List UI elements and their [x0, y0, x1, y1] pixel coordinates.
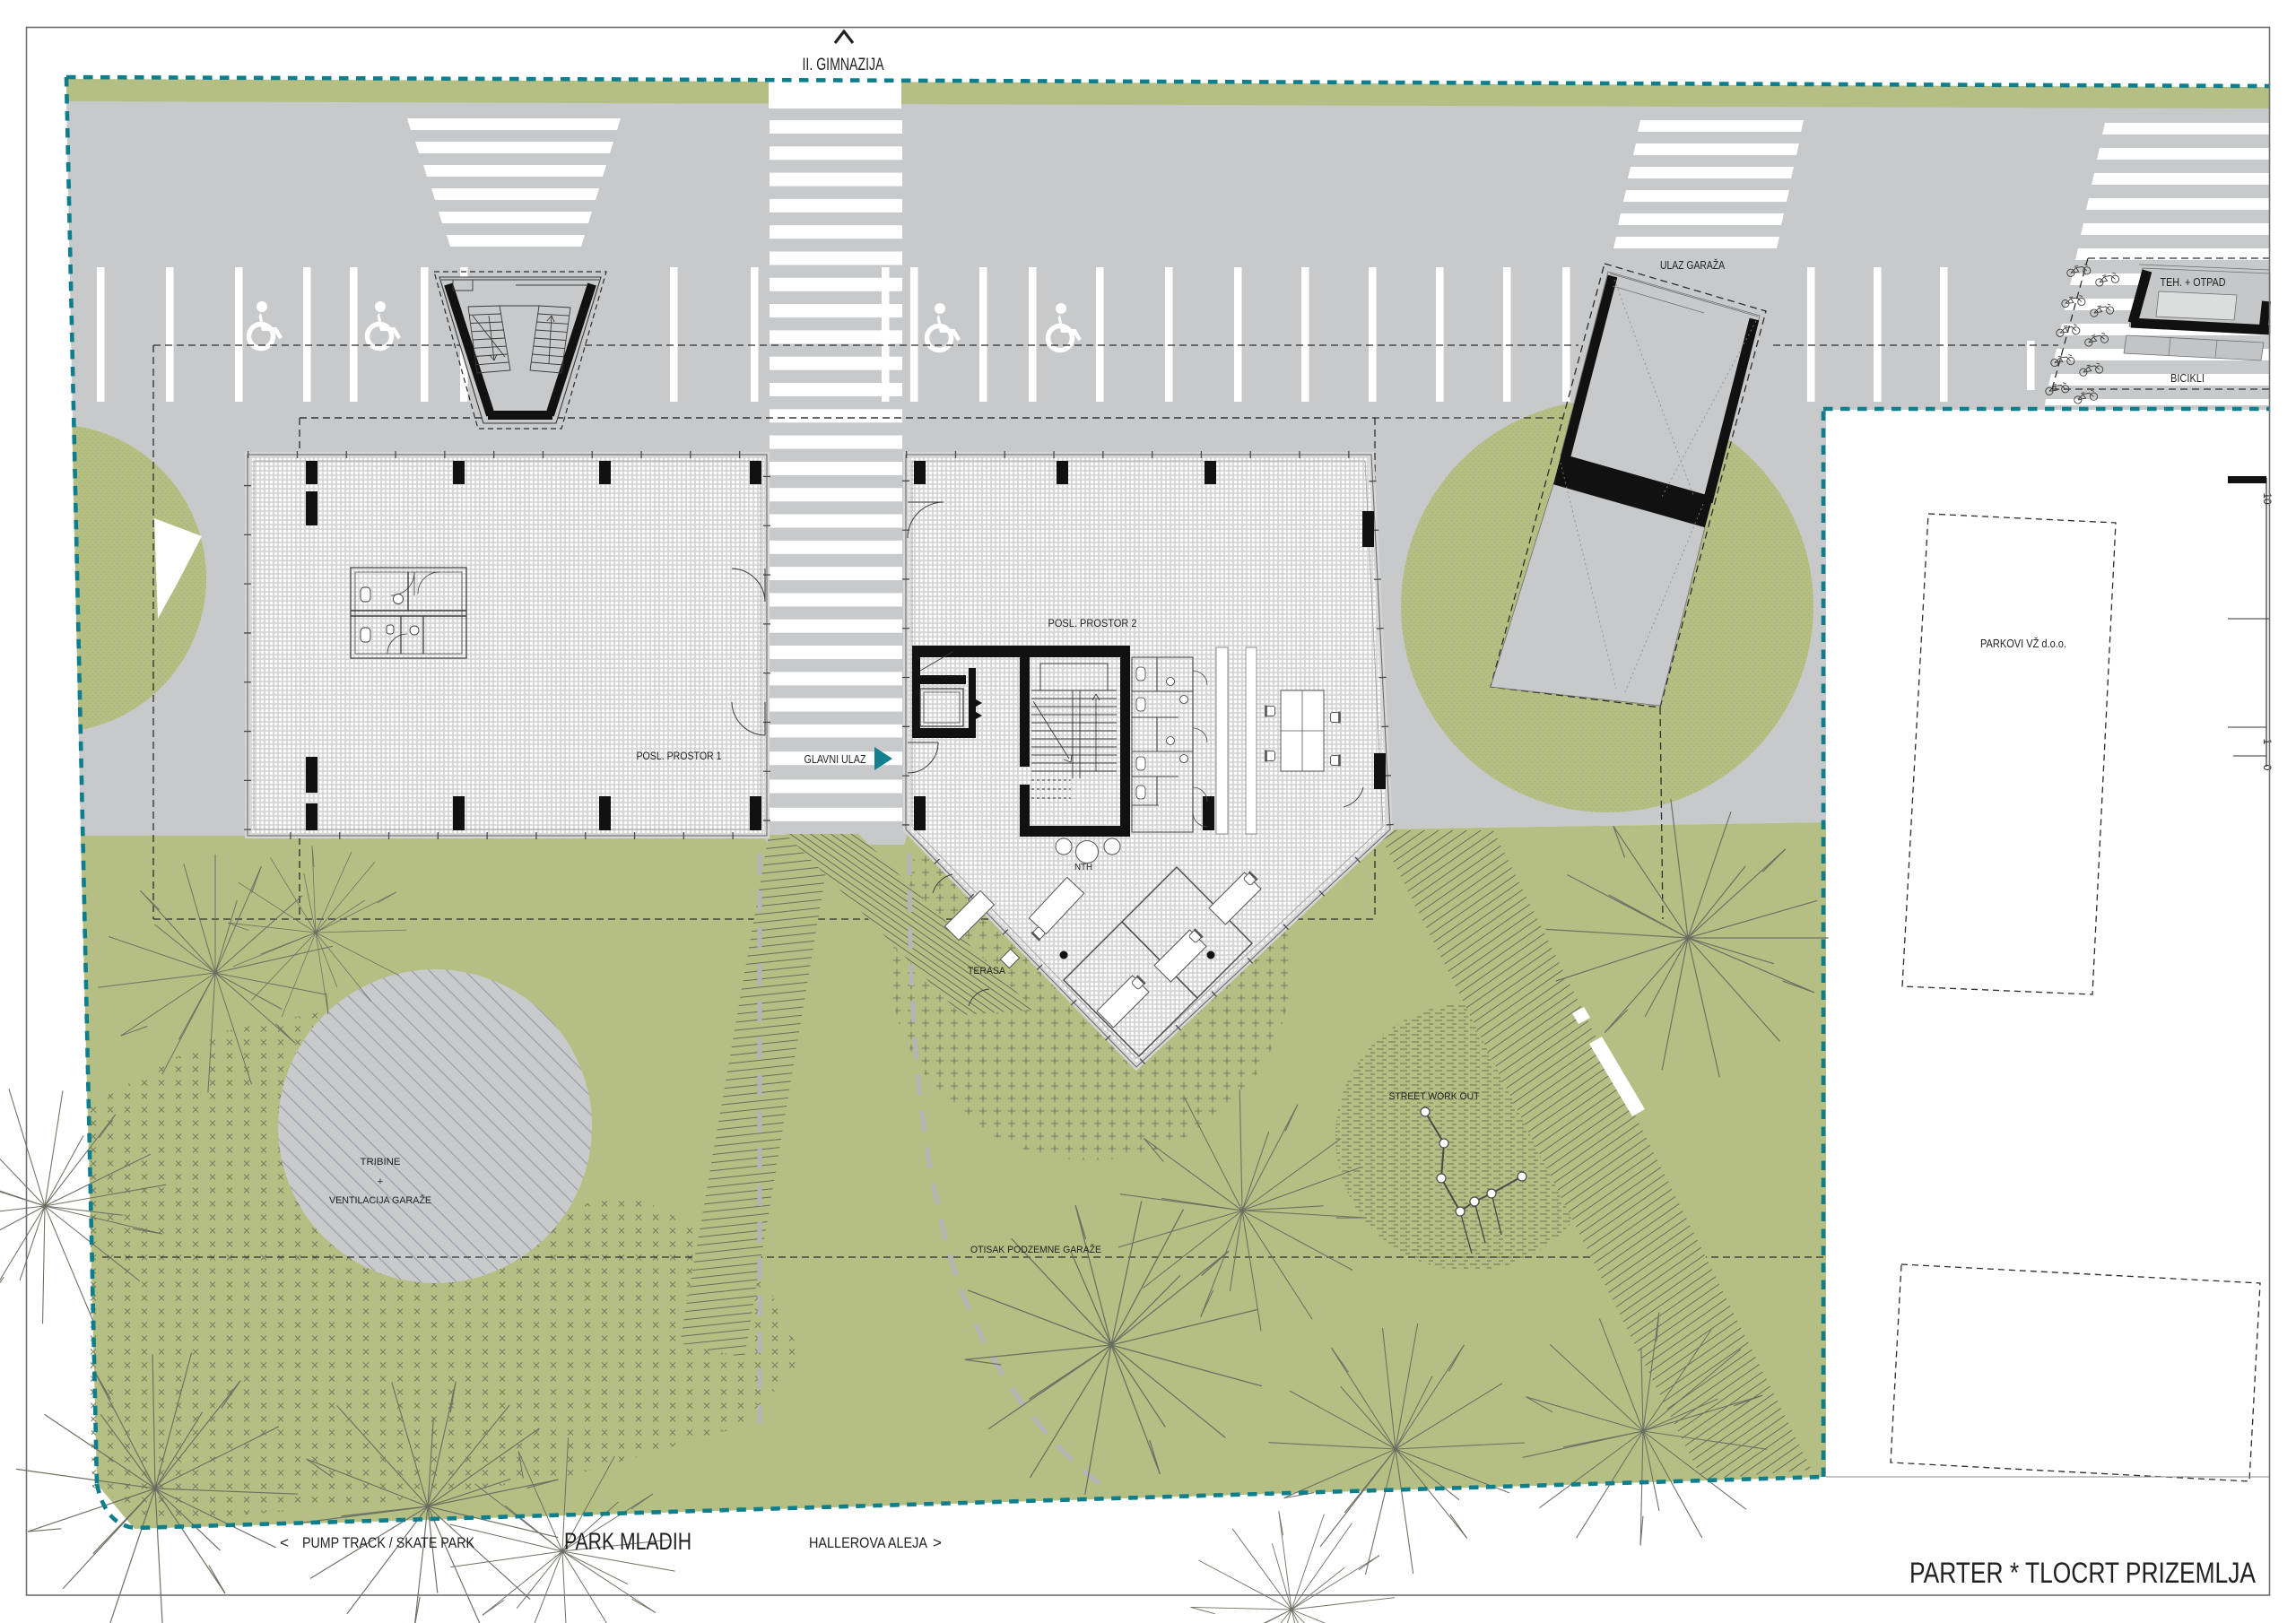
svg-text:POSL. PROSTOR 2: POSL. PROSTOR 2	[1048, 617, 1137, 629]
svg-text:PARKOVI VŽ d.o.o.: PARKOVI VŽ d.o.o.	[1980, 637, 2066, 650]
svg-text:<: <	[280, 1534, 289, 1551]
svg-text:PARTER * TLOCRT PRIZEMLJA: PARTER * TLOCRT PRIZEMLJA	[1909, 1557, 2257, 1589]
svg-text:NTH: NTH	[1074, 862, 1092, 872]
svg-text:TEH. + OTPAD: TEH. + OTPAD	[2161, 276, 2226, 289]
svg-text:TERASA: TERASA	[968, 966, 1006, 976]
svg-text:PUMP TRACK / SKATE PARK: PUMP TRACK / SKATE PARK	[302, 1534, 475, 1551]
svg-text:II. GIMNAZIJA: II. GIMNAZIJA	[803, 55, 884, 74]
svg-text:OTISAK PODZEMNE GARAŽE: OTISAK PODZEMNE GARAŽE	[970, 1244, 1101, 1255]
svg-text:POSL. PROSTOR 1: POSL. PROSTOR 1	[637, 750, 722, 762]
svg-text:PARK MLADIH: PARK MLADIH	[564, 1528, 691, 1555]
svg-text:1: 1	[2261, 739, 2274, 745]
svg-text:+: +	[378, 1176, 383, 1187]
svg-text:0: 0	[2261, 765, 2274, 771]
svg-text:HALLEROVA ALEJA: HALLEROVA ALEJA	[809, 1534, 928, 1551]
svg-text:GLAVNI ULAZ: GLAVNI ULAZ	[804, 752, 866, 766]
svg-text:VENTILACIJA GARAŽE: VENTILACIJA GARAŽE	[329, 1194, 431, 1206]
svg-text:TRIBINE: TRIBINE	[361, 1157, 401, 1167]
svg-text:BICIKLI: BICIKLI	[2170, 372, 2205, 385]
svg-text:>: >	[933, 1534, 942, 1551]
svg-text:ULAZ GARAŽA: ULAZ GARAŽA	[1660, 258, 1726, 272]
svg-text:10: 10	[2261, 492, 2274, 505]
svg-text:STREET WORK OUT: STREET WORK OUT	[1389, 1091, 1480, 1102]
